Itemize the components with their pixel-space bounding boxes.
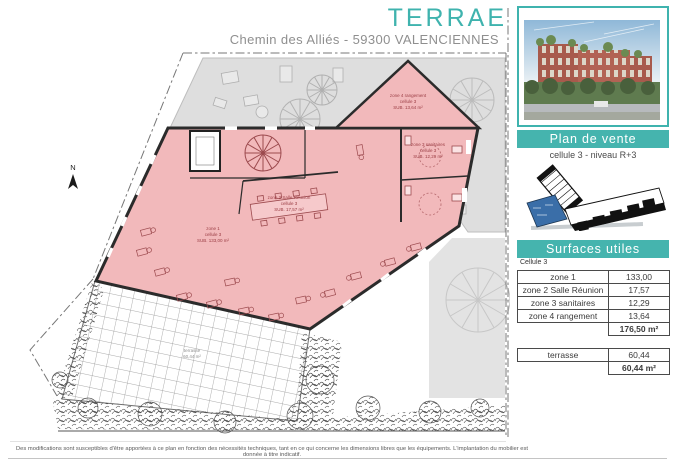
svg-text:zone 3 sanitaires: zone 3 sanitaires (411, 142, 446, 147)
table-row: zone 2 Salle Réunion 17,57 (518, 284, 670, 297)
surfaces-table: zone 1 133,00 zone 2 Salle Réunion 17,57… (517, 270, 670, 336)
svg-text:SUB. 133,00 m²: SUB. 133,00 m² (197, 238, 230, 243)
building-photo-frame (517, 6, 669, 127)
svg-text:terrasse: terrasse (184, 348, 201, 353)
floor-plan-svg: zone 4 rangement cellule 3 SUB. 13,64 m²… (0, 0, 510, 465)
footer-divider-top (10, 441, 506, 442)
north-arrow-icon: N (68, 163, 78, 189)
svg-text:zone 2 Salle Réunion: zone 2 Salle Réunion (268, 195, 311, 200)
svg-text:cellule 3: cellule 3 (420, 148, 437, 153)
svg-text:zone 1: zone 1 (206, 226, 220, 231)
svg-text:60,44 m²: 60,44 m² (183, 354, 201, 359)
svg-text:SUB. 12,29 m²: SUB. 12,29 m² (413, 154, 443, 159)
svg-text:cellule 3: cellule 3 (400, 99, 417, 104)
svg-text:cellule 3: cellule 3 (205, 232, 222, 237)
cell-level-info: cellule 3 - niveau R+3 (517, 150, 669, 160)
svg-text:cellule 3: cellule 3 (281, 201, 298, 206)
table-total-row: 60,44 m² (518, 362, 670, 375)
terrace-table: terrasse 60,44 60,44 m² (517, 348, 670, 375)
svg-text:SUB. 13,64 m²: SUB. 13,64 m² (393, 105, 423, 110)
svg-text:N: N (70, 163, 75, 172)
disclaimer-text: Des modifications sont susceptibles d'êt… (12, 446, 532, 458)
plan-de-vente-banner: Plan de vente (517, 130, 669, 148)
plan-de-vente-page: TERRAE Chemin des Alliés - 59300 VALENCI… (0, 0, 675, 465)
footer-divider (8, 458, 667, 459)
table-row: zone 4 rangement 13,64 (518, 310, 670, 323)
table-row: zone 1 133,00 (518, 271, 670, 284)
table-row: terrasse 60,44 (518, 349, 670, 362)
svg-text:SUB. 17,57 m²: SUB. 17,57 m² (274, 207, 304, 212)
table-total-row: 176,50 m² (518, 323, 670, 336)
svg-text:zone 4 rangement: zone 4 rangement (390, 93, 427, 98)
table-caption: Cellule 3 (520, 259, 547, 266)
key-plan (517, 163, 669, 231)
surfaces-utiles-banner: Surfaces utiles (517, 240, 669, 258)
terrasse-label: terrasse 60,44 m² (183, 348, 201, 359)
table-row: zone 3 sanitaires 12,29 (518, 297, 670, 310)
building-photo (524, 20, 660, 120)
